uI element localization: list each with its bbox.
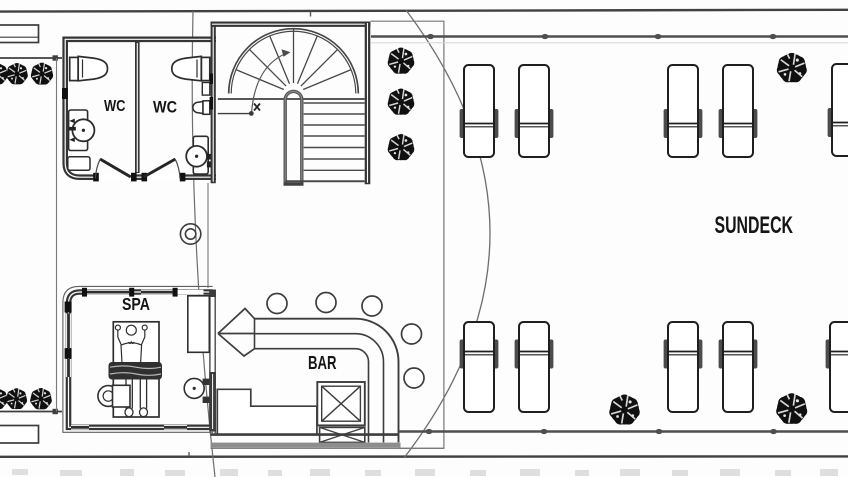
svg-text:WC: WC xyxy=(153,97,177,116)
svg-text:WC: WC xyxy=(104,98,126,115)
svg-text:BAR: BAR xyxy=(308,352,337,373)
svg-text:SUNDECK: SUNDECK xyxy=(715,212,794,239)
svg-text:SPA: SPA xyxy=(122,294,150,314)
